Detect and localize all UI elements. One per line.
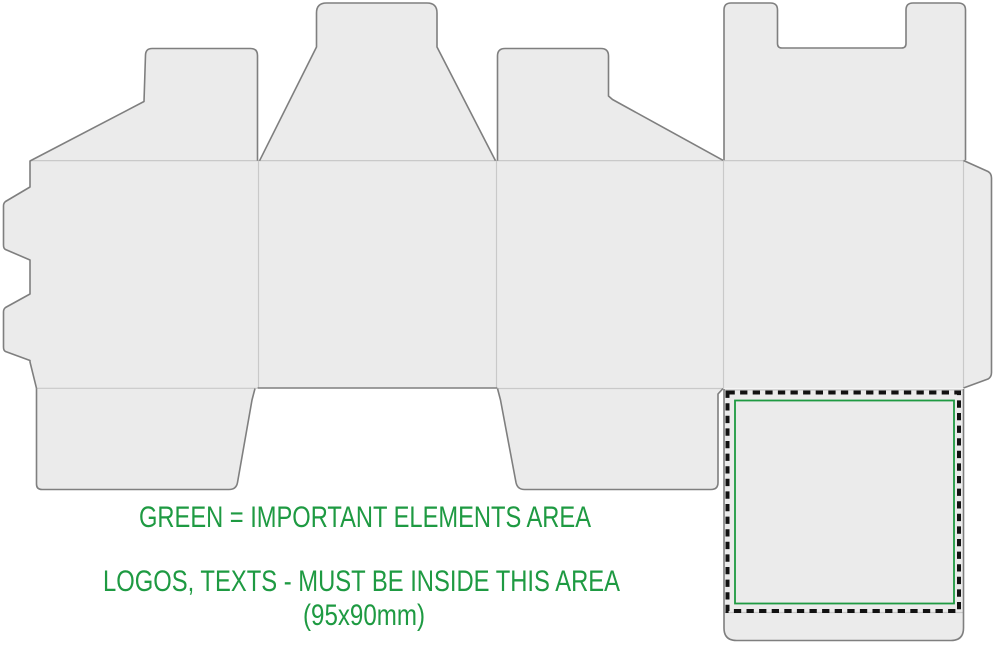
top-flap-4-notched (724, 3, 966, 161)
main-panels-with-side-tabs (4, 160, 964, 389)
annotation-text: GREEN = IMPORTANT ELEMENTS AREA LOGOS, T… (103, 501, 620, 632)
bottom-flap-1 (37, 388, 256, 490)
annotation-line-1: GREEN = IMPORTANT ELEMENTS AREA (139, 501, 591, 534)
annotation-line-2: LOGOS, TEXTS - MUST BE INSIDE THIS AREA (103, 565, 620, 598)
top-flap-1 (30, 49, 258, 162)
top-flap-2-tuck (260, 3, 496, 161)
annotation-line-3: (95x90mm) (303, 599, 425, 632)
glue-flap (964, 161, 992, 389)
bottom-flap-3 (498, 389, 724, 490)
top-flap-3 (498, 49, 724, 162)
dieline-canvas: GREEN = IMPORTANT ELEMENTS AREA LOGOS, T… (0, 0, 1000, 651)
dieline-template-page: GREEN = IMPORTANT ELEMENTS AREA LOGOS, T… (0, 0, 1000, 651)
